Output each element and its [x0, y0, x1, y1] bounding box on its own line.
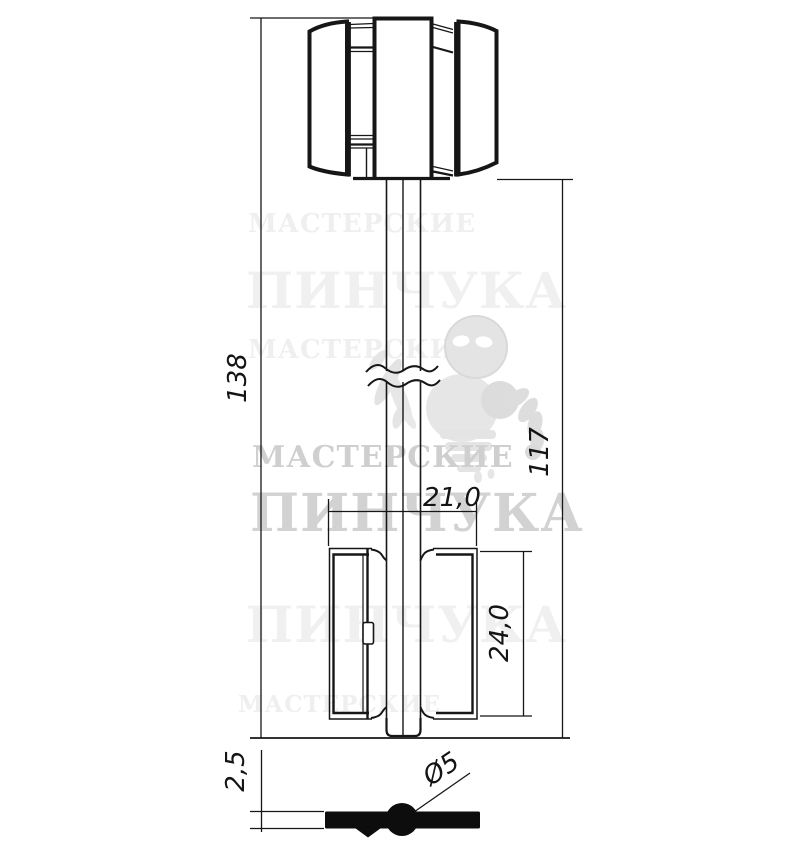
section-shaft-circle	[386, 803, 419, 836]
watermark-text-line2: ПИНЧУКА	[250, 483, 584, 544]
head-left-outer-slat	[310, 22, 348, 175]
head-right-outer-slat	[459, 22, 497, 175]
dim-label-shaft-length: 117	[525, 427, 555, 477]
watermark-text-line1: МАСТЕРСКИЕ	[252, 440, 514, 475]
watermark-text-faint: МАСТЕРСКИЕ	[248, 209, 476, 239]
dimension-diameter-5: Ø5	[414, 747, 470, 812]
head-left-rails	[350, 24, 373, 178]
dim-label-total-length: 138	[223, 353, 253, 403]
dim-label-bit-thickness: 2,5	[221, 750, 251, 791]
watermark-text-faint: МАСТЕРСКИЕ	[248, 335, 476, 365]
dimension-2-5: 2,5	[221, 750, 324, 832]
dim-label-shaft-diameter: Ø5	[417, 747, 465, 793]
key-head	[310, 19, 497, 179]
section-view	[325, 803, 480, 838]
bit-notch	[363, 623, 374, 645]
watermark-text-faint: ПИНЧУКА	[246, 595, 567, 654]
head-center-panel	[375, 19, 432, 179]
section-groove-notch	[355, 828, 381, 838]
head-right-rails	[433, 24, 453, 176]
dim-label-bit-height: 24,0	[485, 604, 515, 662]
key-blank-drawing-page: МАСТЕРСКИЕ ПИНЧУКА МАСТЕРСКИЕ ПИНЧУКА МА…	[0, 0, 806, 860]
dim-label-bit-width: 21,0	[423, 483, 481, 513]
key-blank-drawing: МАСТЕРСКИЕ ПИНЧУКА МАСТЕРСКИЕ ПИНЧУКА МА…	[0, 0, 806, 860]
watermark-text-faint: ПИНЧУКА	[246, 261, 567, 320]
